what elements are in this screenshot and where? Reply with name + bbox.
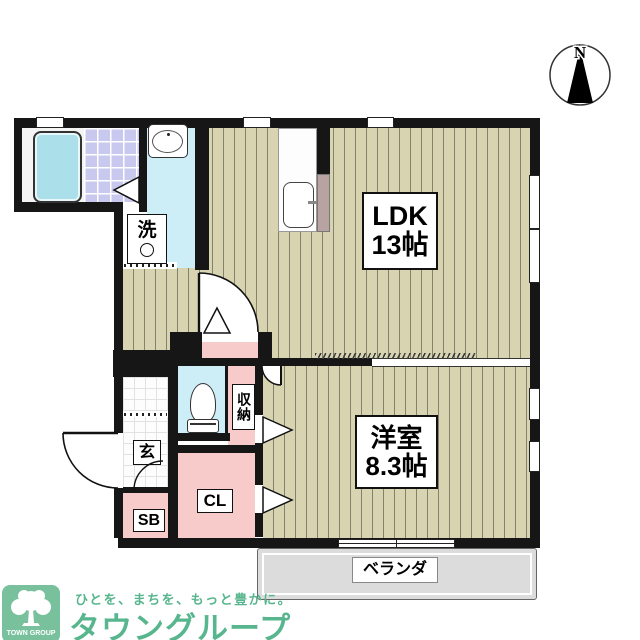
entrance-floor	[123, 377, 168, 487]
window-top-bath	[36, 117, 64, 128]
wall-ldk-divider	[168, 358, 372, 366]
wall-bath-wash	[139, 128, 147, 212]
wall-toilet-bottom	[168, 433, 230, 441]
toilet-tank	[187, 419, 219, 433]
window-top-ldk	[367, 117, 394, 128]
western-room-label-box: 洋室 8.3帖	[355, 415, 438, 489]
washbasin	[148, 124, 188, 158]
north-arrow-icon	[567, 48, 593, 103]
washing-machine-circle	[140, 243, 154, 257]
toilet-tank-line	[190, 423, 216, 425]
wall-hall-corridor	[170, 332, 202, 360]
shoebox-label: SB	[138, 512, 160, 529]
corridor-gap	[202, 332, 258, 342]
entrance-sill	[123, 411, 168, 417]
toilet-bowl	[190, 383, 216, 423]
wall-top	[14, 118, 540, 128]
bathtub	[33, 131, 82, 203]
window-top-kitchen	[243, 117, 271, 128]
tree-icon: TOWN GROUP	[2, 585, 60, 640]
entry-door-swing	[63, 433, 118, 488]
wall-bath-left	[14, 128, 22, 212]
divider-curtain-rail	[315, 353, 477, 359]
storage-door-gap	[255, 415, 263, 443]
entry-door-gap	[114, 433, 123, 488]
shoebox-label-box: SB	[133, 509, 165, 532]
compass-circle	[550, 45, 610, 105]
kitchen-side-panel	[317, 174, 330, 232]
storage-label-box: 収納	[232, 384, 255, 430]
wall-wash-right	[195, 128, 209, 270]
entrance-label: 玄	[139, 444, 155, 461]
wall-bottom	[118, 538, 540, 548]
ldk-name: LDK	[372, 202, 428, 231]
compass-north-label: N	[574, 43, 587, 62]
bath-tile-floor	[84, 128, 139, 202]
wall-closet-top	[168, 445, 255, 453]
window-right-ldk	[529, 175, 540, 283]
ldk-size: 13帖	[371, 231, 428, 260]
brand-name: タウングループ	[69, 603, 291, 640]
washbasin-faucet	[167, 133, 170, 136]
western-room-size: 8.3帖	[365, 452, 427, 480]
kitchen-sink	[283, 182, 314, 228]
ldk-label-box: LDK 13帖	[362, 192, 438, 270]
logo-mark: TOWN GROUP	[2, 585, 60, 640]
laundry-box: 洗	[127, 214, 167, 264]
veranda-label-box: ベランダ	[352, 557, 438, 583]
window-veranda-slider	[338, 539, 455, 548]
compass: N	[550, 43, 610, 105]
window-right-western-2	[529, 441, 540, 472]
wall-hall-bottom	[113, 350, 173, 377]
floor-plan: LDK 13帖 洋室 8.3帖 洗 玄 SB CL 収納 ベランダ	[0, 0, 640, 640]
room-divider-opening	[372, 358, 530, 367]
logo-en-text: TOWN GROUP	[7, 630, 56, 637]
window-right-western-1	[529, 388, 540, 420]
entrance-label-box: 玄	[133, 440, 161, 465]
closet-door-gap	[255, 485, 263, 513]
entry-door-arc	[63, 433, 118, 488]
wall-kitchen-stub	[317, 128, 330, 174]
storage-label: 収納	[236, 392, 251, 422]
wall-corridor-right	[258, 332, 272, 360]
slider-tick	[396, 540, 397, 547]
veranda-label: ベランダ	[363, 561, 427, 578]
closet-label: CL	[204, 492, 227, 510]
wall-toilet-storage	[225, 366, 228, 433]
window-divider	[530, 228, 539, 230]
closet-label-box: CL	[197, 489, 233, 513]
wall-bath-bottom	[14, 202, 123, 212]
western-room-name: 洋室	[370, 424, 422, 452]
laundry-label: 洗	[137, 221, 156, 242]
